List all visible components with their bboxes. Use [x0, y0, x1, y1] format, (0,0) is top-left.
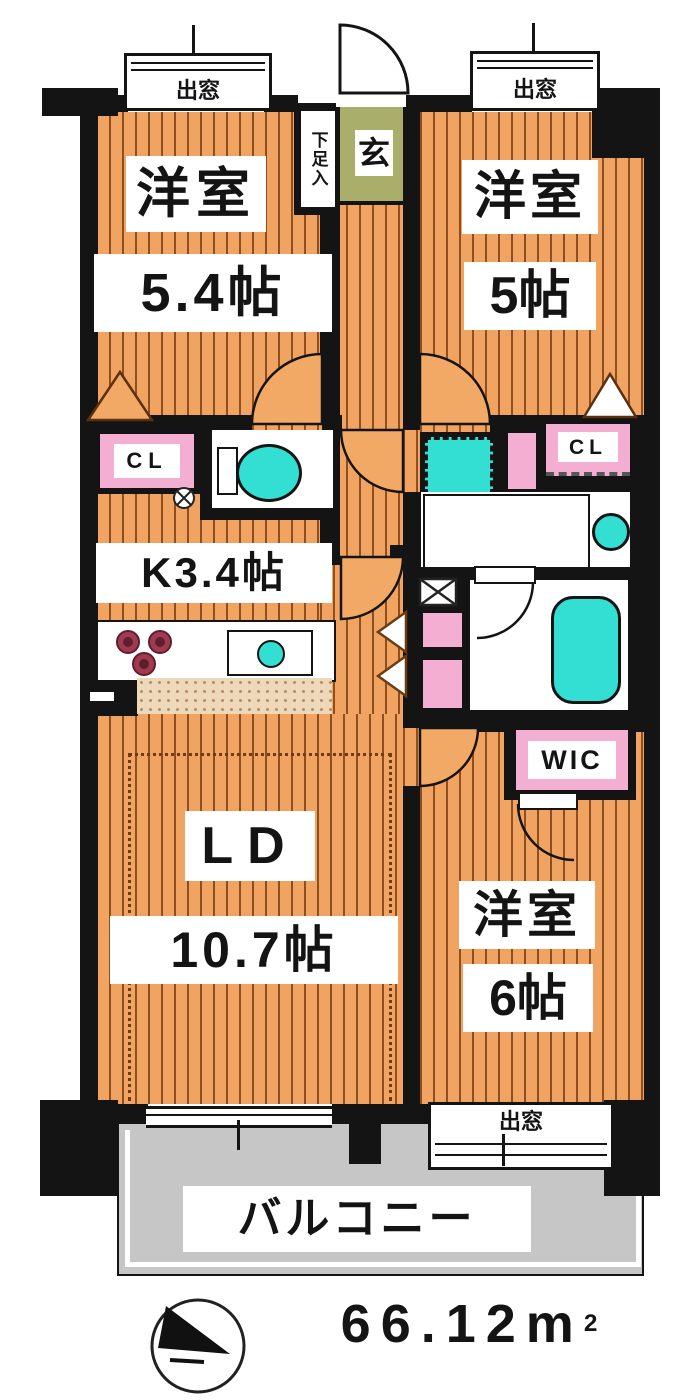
hall-cabinet-1: [423, 613, 462, 647]
closet-nw: CL: [100, 434, 194, 488]
vanity-counter: [423, 494, 590, 569]
door-gap-bedroom-se: [403, 728, 420, 786]
wall-ld-bedroomse: [403, 732, 420, 1104]
bedroom-nw-type: 洋室: [126, 156, 266, 232]
wall-left: [80, 95, 98, 1122]
storage-slab: [508, 433, 536, 489]
entrance-opening: [336, 95, 406, 107]
bay-window-nw-tick: [192, 25, 195, 55]
hall-cabinet-2: [423, 660, 462, 708]
door-gap-bedroom-ne: [420, 417, 490, 432]
door-gap-washroom: [403, 430, 420, 492]
closet-ne-label: CL: [558, 432, 618, 462]
bedroom-nw-size: 5.4帖: [94, 254, 332, 332]
bay-window-ne-tick: [532, 23, 535, 53]
bedroom-ne-size: 5帖: [464, 262, 596, 330]
bay-window-s: 出窓: [428, 1102, 614, 1170]
toilet-tank: [217, 447, 238, 495]
wall-balcony-divider: [349, 1122, 381, 1164]
bay-window-ne-label: 出窓: [473, 72, 597, 108]
entrance-label: 玄: [355, 130, 393, 176]
bay-window-s-label: 出窓: [431, 1107, 611, 1137]
area-unit: m: [526, 1297, 584, 1351]
wall-bottom-2: [332, 1104, 430, 1122]
bedroom-se-size: 6帖: [463, 964, 593, 1032]
bay-window-ne: 出窓: [470, 51, 600, 111]
toilet-bowl: [236, 444, 302, 502]
bay-window-s-tick: [502, 1134, 505, 1166]
balcony-label: バルコニー: [183, 1186, 531, 1252]
bedroom-ne-type: 洋室: [462, 160, 598, 234]
entrance-door-arc: [340, 25, 408, 93]
kitchen-label: K3.4帖: [96, 543, 332, 603]
wall-hall-bedroomne: [403, 95, 420, 417]
wic: WIC: [516, 730, 628, 790]
washbasin: [592, 513, 630, 551]
bedroom-se-type: 洋室: [459, 881, 595, 949]
washer-space: [425, 437, 493, 495]
wall-pillar-sw: [40, 1100, 118, 1196]
ld-window-tick: [237, 1120, 240, 1150]
kitchen-tile-floor: [137, 678, 332, 714]
living-dining-size: 10.7帖: [110, 916, 398, 984]
bathtub: [551, 596, 621, 704]
bathroom-door-leaf: [474, 566, 536, 584]
shoe-storage-text: 下足入: [310, 131, 327, 188]
area-text: 66.12m2: [318, 1286, 630, 1362]
wall-hall-stub: [390, 545, 418, 561]
floor-plan: 出窓 出窓 出窓 CL CL WIC: [0, 0, 698, 1400]
wall-opening-tick: [90, 692, 114, 701]
bay-window-nw: 出窓: [124, 53, 272, 111]
closet-ne: CL: [546, 424, 630, 476]
area-value: 66.12: [341, 1297, 526, 1351]
compass-icon: [152, 1300, 244, 1392]
area-sup: 2: [584, 1312, 608, 1336]
living-dining-type: LD: [185, 811, 315, 881]
closet-nw-label: CL: [114, 444, 180, 478]
entrance-step-line: [338, 201, 406, 205]
bay-window-nw-label: 出窓: [127, 74, 269, 108]
wic-label: WIC: [528, 741, 616, 779]
shoe-storage-label: 下足入: [301, 111, 335, 207]
wic-door-leaf: [518, 792, 578, 810]
kitchen-sink: [257, 640, 285, 668]
